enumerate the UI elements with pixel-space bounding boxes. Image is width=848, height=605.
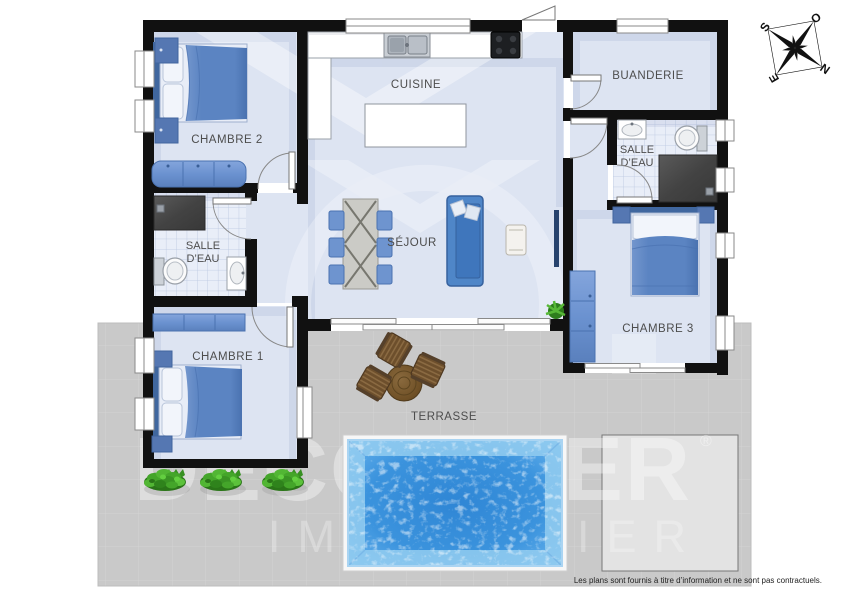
svg-text:CHAMBRE 1: CHAMBRE 1 bbox=[192, 351, 264, 363]
svg-text:D’EAU: D’EAU bbox=[186, 253, 219, 265]
svg-text:®: ® bbox=[700, 433, 712, 450]
svg-text:CUISINE: CUISINE bbox=[391, 79, 441, 91]
svg-text:TERRASSE: TERRASSE bbox=[411, 411, 477, 423]
svg-text:CHAMBRE 3: CHAMBRE 3 bbox=[622, 323, 694, 335]
svg-text:SÉJOUR: SÉJOUR bbox=[387, 236, 437, 249]
svg-text:D’EAU: D’EAU bbox=[620, 157, 653, 169]
svg-text:SALLE: SALLE bbox=[620, 144, 654, 156]
svg-text:SALLE: SALLE bbox=[186, 240, 220, 252]
svg-text:BUANDERIE: BUANDERIE bbox=[612, 70, 684, 82]
svg-text:CHAMBRE 2: CHAMBRE 2 bbox=[191, 134, 263, 146]
svg-text:Les plans sont fournis à titre: Les plans sont fournis à titre d’informa… bbox=[574, 576, 822, 585]
